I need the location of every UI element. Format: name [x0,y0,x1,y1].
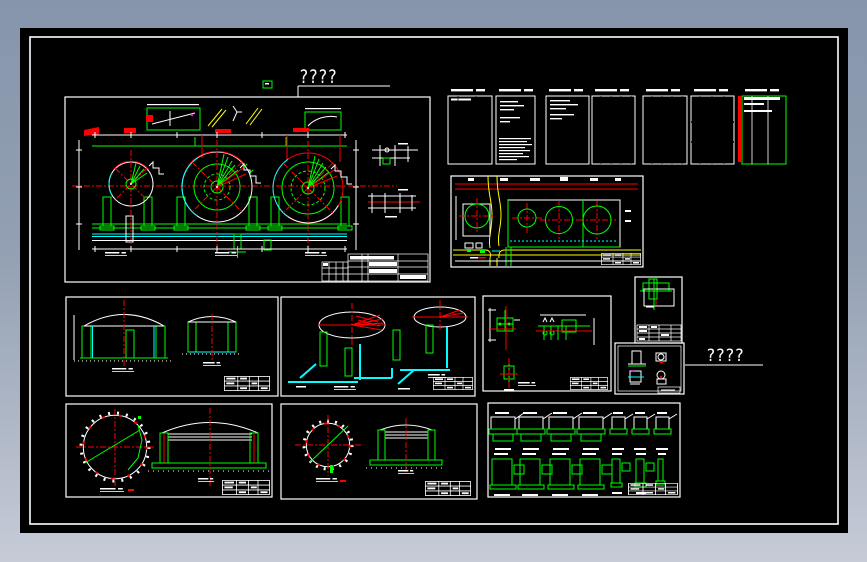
cad-drawing-sheet: ???? [0,0,867,562]
cad-viewer: ???? [0,0,867,562]
detail-sheet-title-text: ???? [706,346,744,366]
main-plan-title-text: ???? [299,66,337,88]
